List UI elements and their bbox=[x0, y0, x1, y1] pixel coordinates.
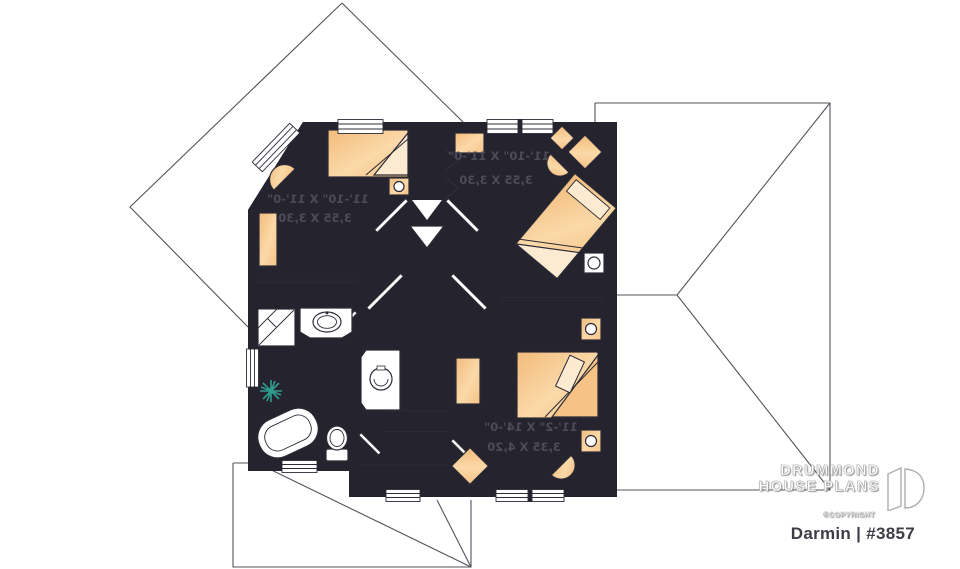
nightstand-master-top bbox=[581, 318, 601, 340]
drummond-d-logo-icon bbox=[885, 465, 927, 511]
roof-right-rect bbox=[595, 103, 830, 490]
copyright-label: ©COPYRIGHT bbox=[745, 512, 927, 519]
window-master-bottom-pair bbox=[496, 490, 564, 502]
bed-master bbox=[517, 352, 598, 418]
brand-wordmark: DRUMMOND HOUSE PLANS bbox=[759, 464, 880, 495]
bedroom-left-dim-imperial: 11'-10" X 11'-0" bbox=[267, 192, 368, 206]
nightstand-bedroom-left bbox=[389, 178, 409, 195]
toilet bbox=[326, 426, 348, 461]
hall-vanity-sink bbox=[361, 350, 400, 410]
brand-line2: HOUSE PLANS bbox=[759, 480, 880, 496]
brand-block: DRUMMOND HOUSE PLANS ©COPYRIGHT Darmin |… bbox=[745, 464, 927, 544]
window-top-left bbox=[338, 120, 383, 134]
dresser-bedroom-left bbox=[259, 213, 277, 266]
plan-title: Darmin | #3857 bbox=[745, 524, 927, 544]
floorplan-page: 11'-10" X 11'-0" 3,55 X 3,30 11'-10" X 1… bbox=[0, 0, 960, 569]
window-left-wall bbox=[247, 349, 259, 387]
brand-line1: DRUMMOND bbox=[759, 464, 880, 480]
dresser-master bbox=[456, 358, 480, 404]
window-master-bottom bbox=[386, 490, 420, 502]
roof-right-hips bbox=[617, 103, 830, 490]
bed-bedroom-left bbox=[328, 130, 408, 177]
corner-shower bbox=[258, 309, 295, 346]
nightstand-bedroom-right bbox=[584, 253, 604, 273]
brand-row: DRUMMOND HOUSE PLANS bbox=[745, 464, 927, 511]
roof-left-ridge bbox=[342, 3, 463, 122]
nightstand-master-bottom bbox=[581, 430, 601, 452]
bedroom-left-dim-metric: 3,55 X 3,30 bbox=[278, 211, 352, 225]
window-top-right-pair bbox=[487, 120, 553, 134]
bathroom-vanity-sink bbox=[300, 308, 352, 338]
master-dim-imperial: 11'-2" X 14'-0" bbox=[484, 420, 577, 434]
plant-icon bbox=[260, 380, 282, 402]
window-bathroom-bottom bbox=[282, 461, 317, 473]
bedroom-right-dim-imperial: 11'-10" X 11'-0" bbox=[448, 149, 549, 163]
bedroom-right-dim-metric: 3,55 X 3,30 bbox=[459, 173, 533, 187]
master-dim-metric: 3,35 X 4,20 bbox=[487, 440, 561, 454]
